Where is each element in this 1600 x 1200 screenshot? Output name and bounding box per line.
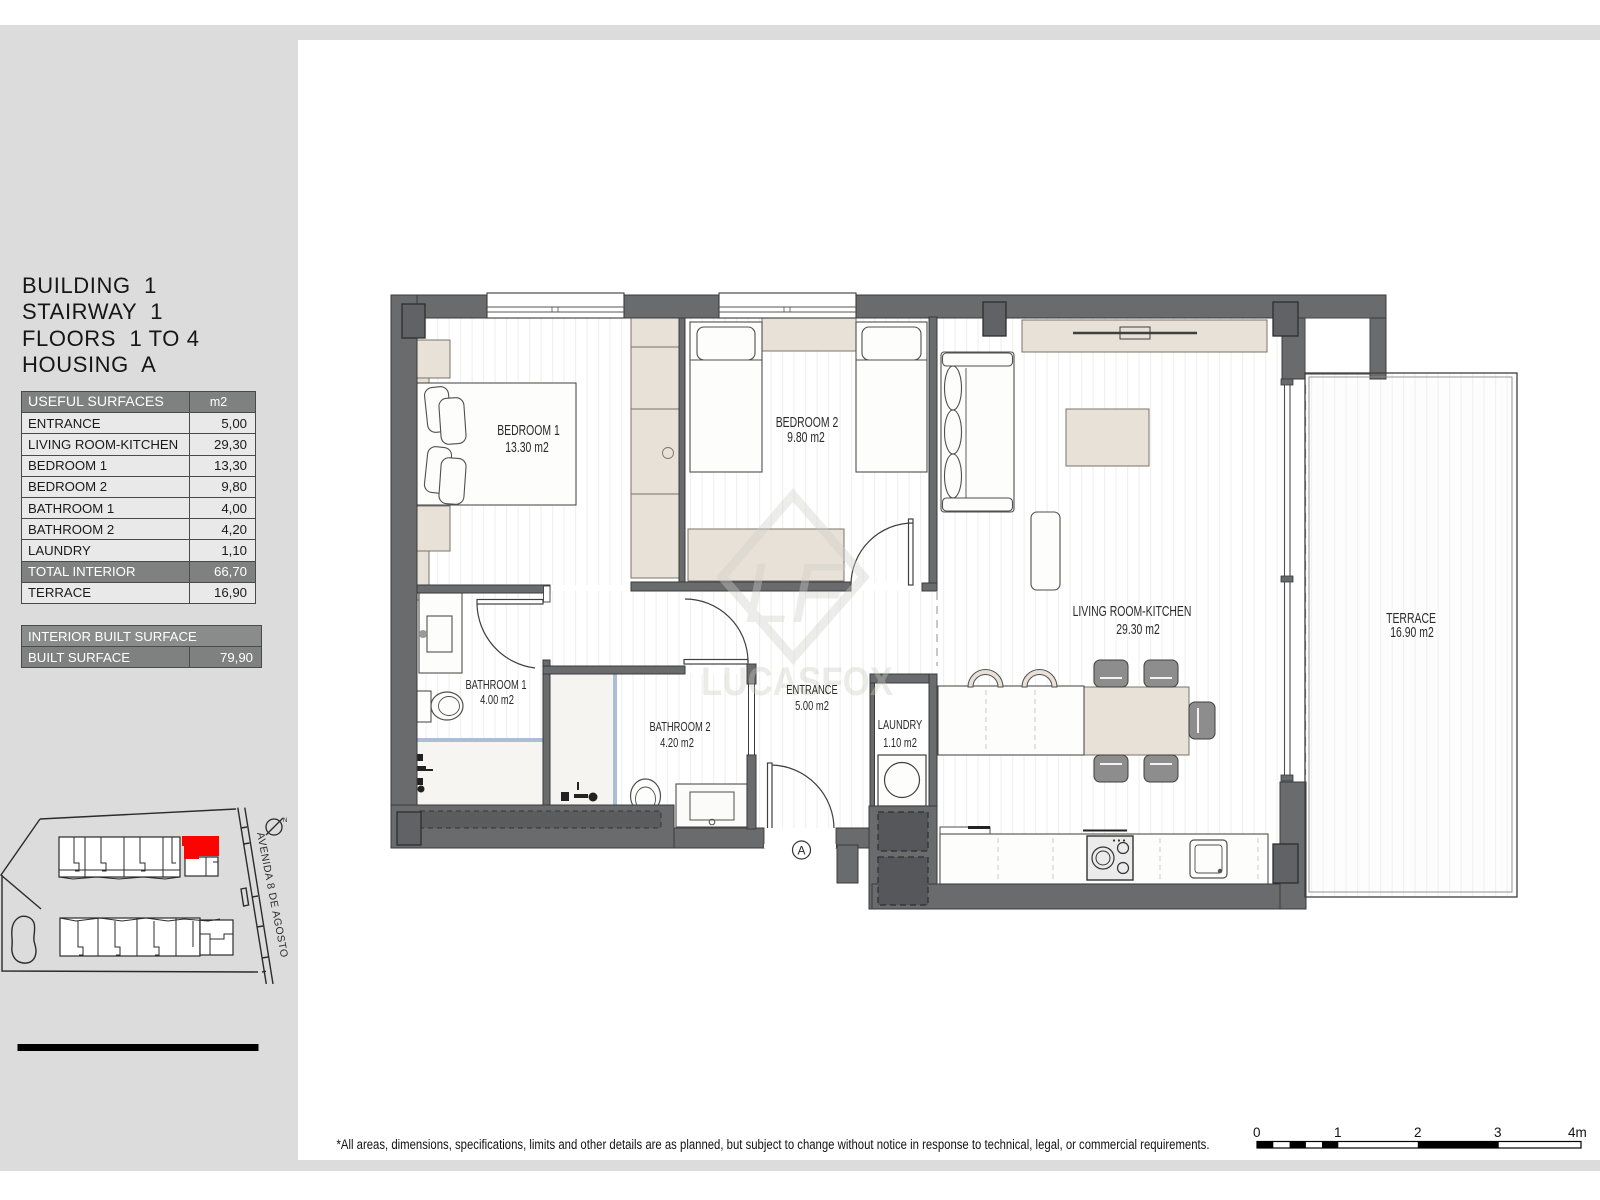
svg-text:BATHROOM 1: BATHROOM 1: [465, 679, 526, 693]
svg-text:29.30 m2: 29.30 m2: [1116, 621, 1159, 637]
svg-text:BEDROOM 1: BEDROOM 1: [497, 422, 560, 438]
svg-text:3: 3: [1494, 1125, 1502, 1140]
svg-text:LAUNDRY: LAUNDRY: [878, 719, 923, 733]
svg-text:LIVING ROOM-KITCHEN: LIVING ROOM-KITCHEN: [1073, 603, 1192, 619]
svg-text:BEDROOM 2: BEDROOM 2: [776, 414, 839, 430]
svg-text:1: 1: [1334, 1125, 1342, 1140]
svg-text:LF: LF: [744, 546, 847, 640]
svg-text:16.90 m2: 16.90 m2: [1390, 624, 1433, 640]
svg-text:N: N: [283, 818, 287, 824]
svg-text:1.10 m2: 1.10 m2: [883, 737, 917, 751]
svg-text:9.80 m2: 9.80 m2: [787, 429, 825, 445]
svg-text:4m: 4m: [1568, 1125, 1587, 1140]
svg-text:BATHROOM 2: BATHROOM 2: [649, 721, 710, 735]
svg-text:*All areas, dimensions, specif: *All areas, dimensions, specifications, …: [337, 1137, 1210, 1152]
svg-text:2: 2: [1414, 1125, 1422, 1140]
svg-text:13.30 m2: 13.30 m2: [505, 439, 548, 455]
svg-text:4.20 m2: 4.20 m2: [660, 737, 694, 751]
svg-text:ENTRANCE: ENTRANCE: [786, 684, 838, 698]
svg-text:0: 0: [1253, 1125, 1261, 1140]
svg-text:4.00 m2: 4.00 m2: [480, 694, 514, 708]
svg-text:A: A: [797, 844, 805, 858]
svg-text:5.00 m2: 5.00 m2: [795, 700, 829, 714]
